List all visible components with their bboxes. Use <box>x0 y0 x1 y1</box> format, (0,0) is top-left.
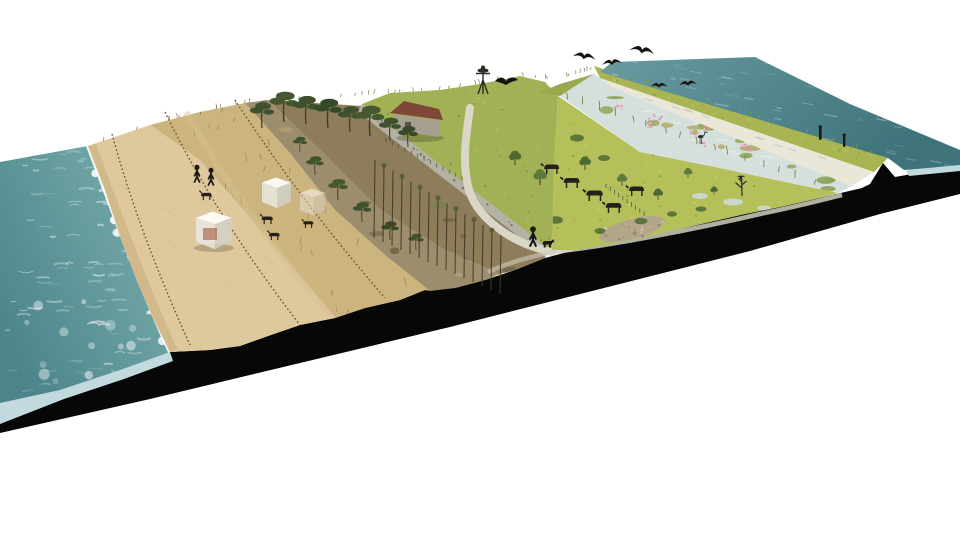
coastal-section-illustration <box>0 0 960 540</box>
bird-on-nest-pole <box>481 66 484 69</box>
meadow-pool <box>723 199 743 206</box>
bunker-rust-mark <box>203 228 217 240</box>
meadow-pool <box>692 193 708 199</box>
gull-icon <box>629 45 655 56</box>
gull-icon <box>572 51 596 60</box>
landscape-figure <box>0 0 960 540</box>
